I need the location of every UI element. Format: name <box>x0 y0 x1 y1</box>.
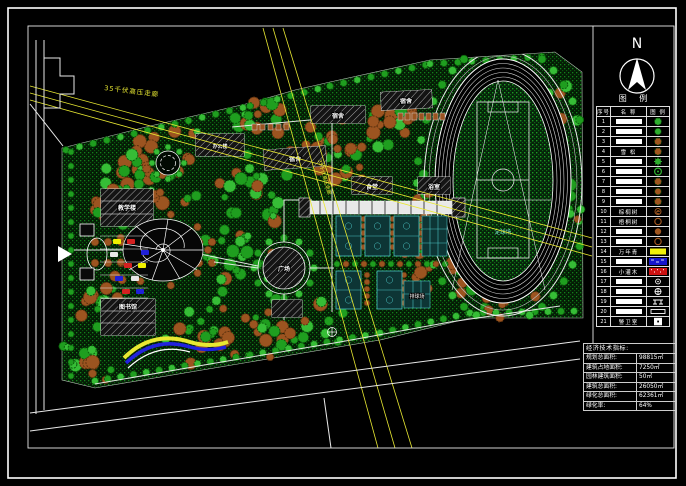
legend-symbol-icon <box>646 177 669 186</box>
legend-name-block <box>616 279 642 284</box>
plaza-label: 广场 <box>278 265 290 273</box>
legend-row-name <box>610 117 646 126</box>
north-arrow: N <box>609 34 665 102</box>
running-track: 足球场 <box>435 59 571 303</box>
legend-name-block <box>616 199 642 204</box>
legend-row-number: 5 <box>597 157 610 166</box>
legend-name-block <box>616 159 642 164</box>
legend-row-name <box>610 177 646 186</box>
legend-symbol-icon <box>646 257 669 266</box>
legend-row: 8 <box>597 186 669 196</box>
indicator-label: 绿化总面积: <box>584 392 636 401</box>
legend-row: 14万年青 <box>597 246 669 256</box>
legend-symbol-icon <box>646 157 669 166</box>
legend-row-number: 13 <box>597 237 610 246</box>
legend-column-header: 序号 <box>597 107 610 116</box>
legend-name-block <box>616 179 642 184</box>
legend-row: 13 <box>597 236 669 246</box>
indicator-value: 64% <box>636 402 674 411</box>
indicator-row: 建筑占地面积:7250㎡ <box>584 364 676 374</box>
legend-row: 20 <box>597 306 669 316</box>
legend-name-block <box>616 119 642 124</box>
legend-symbol-icon <box>646 187 669 196</box>
legend-name-block <box>616 139 642 144</box>
indicator-row: 园林建筑面积:50㎡ <box>584 373 676 383</box>
legend-symbol-icon <box>646 217 669 226</box>
legend-row-name <box>610 167 646 176</box>
north-arrow-icon <box>628 58 646 90</box>
indicator-value: 62361㎡ <box>636 392 674 401</box>
legend-row-number: 21 <box>597 317 610 326</box>
indicator-label: 园林建筑面积: <box>584 373 636 382</box>
legend-row-name <box>610 307 646 316</box>
legend-row-number: 10 <box>597 207 610 216</box>
legend-symbol-icon <box>646 167 669 176</box>
legend-name-block <box>616 289 642 294</box>
legend-row: 2 <box>597 126 669 136</box>
legend-symbol-icon <box>646 127 669 136</box>
legend-row-number: 7 <box>597 177 610 186</box>
legend-symbol-icon <box>646 237 669 246</box>
legend-row: 7 <box>597 176 669 186</box>
legend-symbol-icon <box>646 277 669 286</box>
legend-row: 6 <box>597 166 669 176</box>
legend-name-block <box>616 259 642 264</box>
legend-row-name <box>610 187 646 196</box>
legend-row-name <box>610 297 646 306</box>
legend-row-name <box>610 127 646 136</box>
legend-symbol-icon <box>646 267 669 276</box>
site-plan-canvas[interactable]: 足球场 排球场 <box>0 0 686 486</box>
legend-row-name <box>610 237 646 246</box>
legend-row-number: 16 <box>597 267 610 276</box>
legend-symbol-icon <box>646 117 669 126</box>
legend-row-name <box>610 287 646 296</box>
legend-row-number: 6 <box>597 167 610 176</box>
legend-symbol-icon <box>646 297 669 306</box>
legend-row-number: 3 <box>597 137 610 146</box>
legend-row-number: 11 <box>597 217 610 226</box>
legend-name-block <box>616 309 642 314</box>
legend-row-name <box>610 197 646 206</box>
legend-row-name: 警卫室 <box>610 317 646 326</box>
indicators-table: 经济技术指标: 规划总面积:98815㎡建筑占地面积:7250㎡园林建筑面积:5… <box>583 343 677 411</box>
power-corridor-label-1: 35千伏高压走廊 <box>104 83 160 99</box>
building-label-teaching: 教学楼 <box>117 204 136 212</box>
indicator-row: 规划总面积:98815㎡ <box>584 354 676 364</box>
legend-row-number: 2 <box>597 127 610 136</box>
legend-name-block <box>616 299 642 304</box>
legend-row-number: 9 <box>597 197 610 206</box>
legend-row-name <box>610 137 646 146</box>
indicator-value: 98815㎡ <box>636 354 674 363</box>
legend-row-number: 19 <box>597 297 610 306</box>
legend-row: 9 <box>597 196 669 206</box>
legend-row-number: 20 <box>597 307 610 316</box>
legend-row-name: 棕榈树 <box>610 207 646 216</box>
building-label-library: 图书馆 <box>119 303 137 311</box>
legend-symbol-icon <box>646 147 669 156</box>
legend-column-header: 图 例 <box>646 107 669 116</box>
legend-row: 18 <box>597 286 669 296</box>
legend-symbol-icon <box>646 207 669 216</box>
indicator-label: 绿化率: <box>584 402 636 411</box>
indicators-title: 经济技术指标: <box>584 343 676 354</box>
legend-row-name: 万年青 <box>610 247 646 256</box>
indicator-label: 建筑总面积: <box>584 383 636 392</box>
legend-row-number: 8 <box>597 187 610 196</box>
legend-row: 12 <box>597 226 669 236</box>
legend-symbol-icon <box>646 317 669 326</box>
legend-row-number: 18 <box>597 287 610 296</box>
legend-symbol-icon <box>646 287 669 296</box>
indicator-value: 7250㎡ <box>636 364 674 373</box>
gate-house-south <box>80 268 94 280</box>
legend-row-name <box>610 157 646 166</box>
legend-row: 4雪 松 <box>597 146 669 156</box>
legend-row: 5 <box>597 156 669 166</box>
legend-row: 16小灌木 <box>597 266 669 276</box>
legend-row-number: 14 <box>597 247 610 256</box>
indicator-row: 绿化率:64% <box>584 402 676 411</box>
volleyball-court-label: 排球场 <box>409 293 424 300</box>
indicator-label: 规划总面积: <box>584 354 636 363</box>
building-label-dorm2: 宿舍 <box>400 97 413 106</box>
legend-row-name <box>610 277 646 286</box>
legend-row-number: 12 <box>597 227 610 236</box>
central-plaza: 广场 <box>258 242 310 294</box>
legend-row-number: 4 <box>597 147 610 156</box>
legend-row: 1 <box>597 116 669 126</box>
legend-symbol-icon <box>646 197 669 206</box>
pavilion <box>328 328 337 337</box>
legend-symbol-icon <box>646 137 669 146</box>
building-label-bath: 浴室 <box>428 183 440 191</box>
legend-symbol-icon <box>646 307 669 316</box>
legend-symbol-icon <box>646 247 669 256</box>
legend-row-name: 梧桐树 <box>610 217 646 226</box>
indicator-row: 建筑总面积:26050㎡ <box>584 383 676 393</box>
legend-name-block <box>616 229 642 234</box>
legend-row: 11梧桐树 <box>597 216 669 226</box>
legend-table: 序号名 称图 例1234雪 松5678910棕榈树11梧桐树121314万年青1… <box>596 106 670 327</box>
legend-row-number: 17 <box>597 277 610 286</box>
legend-name-block <box>616 169 642 174</box>
building-small <box>272 300 302 317</box>
legend-name-block <box>616 239 642 244</box>
legend-row: 21警卫室 <box>597 316 669 326</box>
legend-name-block <box>616 189 642 194</box>
spiral-plaza <box>123 219 203 281</box>
legend-row: 3 <box>597 136 669 146</box>
legend-row: 17 <box>597 276 669 286</box>
legend-row-name <box>610 257 646 266</box>
legend-row-name: 小灌木 <box>610 267 646 276</box>
legend-row-number: 1 <box>597 117 610 126</box>
indicator-label: 建筑占地面积: <box>584 364 636 373</box>
legend-column-header: 名 称 <box>610 107 646 116</box>
gate-house-north <box>80 224 94 236</box>
legend-row: 19 <box>597 296 669 306</box>
building-label-dorm1: 宿舍 <box>332 112 345 120</box>
legend-name-block <box>616 129 642 134</box>
north-label: N <box>632 36 642 52</box>
indicator-value: 50㎡ <box>636 373 674 382</box>
legend-symbol-icon <box>646 227 669 236</box>
indicator-row: 绿化总面积:62361㎡ <box>584 392 676 402</box>
legend-header-row: 序号名 称图 例 <box>597 107 669 116</box>
legend-row-name <box>610 227 646 236</box>
legend-row-number: 15 <box>597 257 610 266</box>
legend-row-name: 雪 松 <box>610 147 646 156</box>
legend-panel: 图 例 序号名 称图 例1234雪 松5678910棕榈树11梧桐树121314… <box>596 93 670 327</box>
legend-row: 10棕榈树 <box>597 206 669 216</box>
soccer-field-label: 足球场 <box>495 228 512 236</box>
legend-row: 15 <box>597 256 669 266</box>
building-label-canteen: 食堂 <box>365 183 378 191</box>
indicator-value: 26050㎡ <box>636 383 674 392</box>
legend-title: 图 例 <box>596 93 670 104</box>
round-pond <box>156 151 180 175</box>
